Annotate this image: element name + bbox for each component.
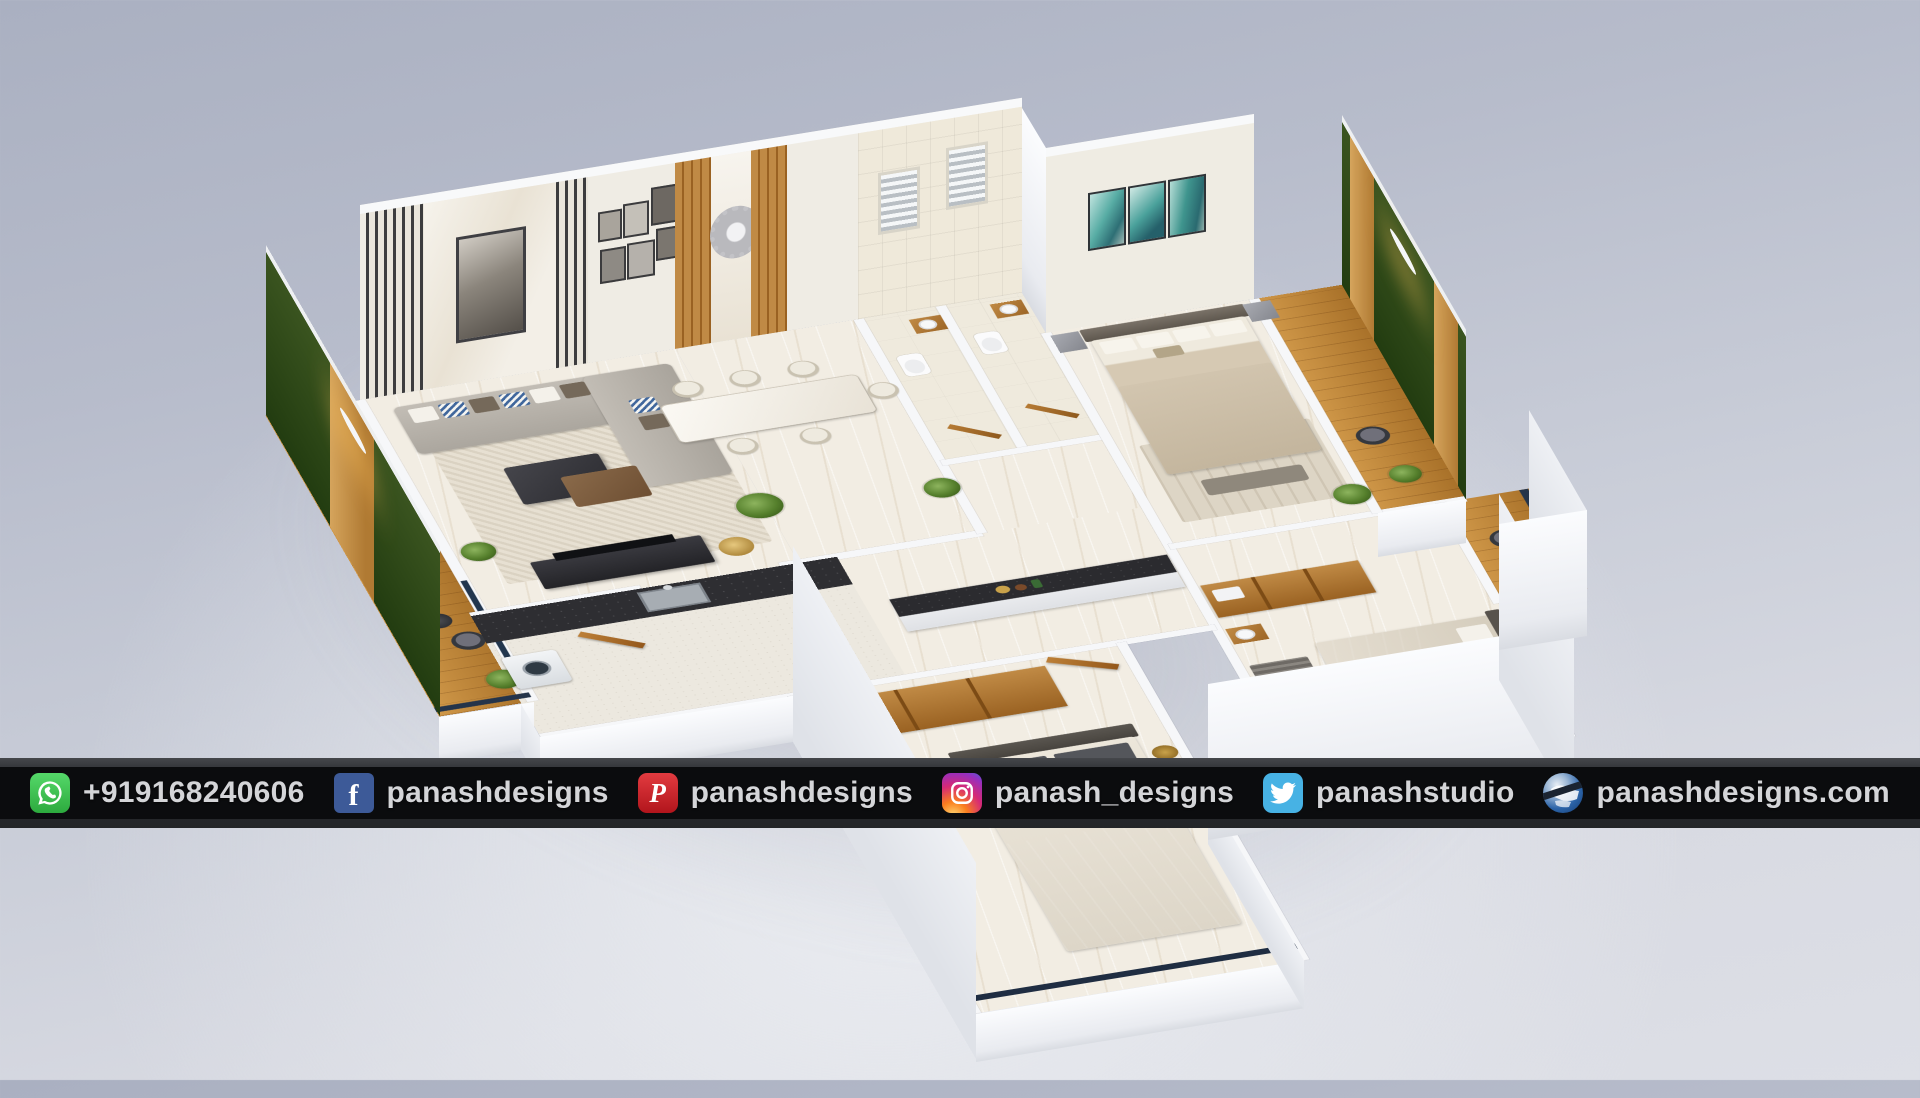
- facebook-handle: panashdesigns: [387, 776, 609, 810]
- gallery-frame-1: [598, 209, 622, 243]
- website-contact[interactable]: panashdesigns.com: [1543, 773, 1890, 813]
- foyer-wood-panel-left: [675, 157, 711, 349]
- twitter-icon: [1263, 773, 1303, 813]
- gallery-frame-4: [600, 246, 626, 284]
- whatsapp-number: +919168240606: [83, 776, 305, 810]
- gallery-frame-5: [627, 239, 655, 280]
- master-back-wall: [1046, 114, 1254, 333]
- instagram-icon: [942, 773, 982, 813]
- twitter-handle: panashstudio: [1316, 776, 1515, 810]
- facebook-icon: f: [334, 773, 374, 813]
- louver-window-1: [878, 166, 920, 235]
- whatsapp-contact[interactable]: +919168240606: [30, 773, 305, 813]
- gallery-frame-3: [651, 184, 677, 226]
- facebook-contact[interactable]: f panashdesigns: [334, 773, 609, 813]
- pinterest-contact[interactable]: P panashdesigns: [638, 773, 913, 813]
- pinterest-icon: P: [638, 773, 678, 813]
- teal-art-panel-3: [1168, 174, 1206, 238]
- pinterest-handle: panashdesigns: [691, 776, 913, 810]
- wall-top-cap: [1046, 114, 1254, 157]
- whatsapp-icon: [30, 773, 70, 813]
- slat-panel-right: [556, 177, 588, 368]
- foyer-wood-panel-right: [751, 145, 787, 337]
- slat-panel-left: [366, 204, 424, 399]
- teal-art-panel-2: [1128, 180, 1166, 244]
- wall-connector-bath-master: [1022, 108, 1046, 333]
- louver-window-2: [946, 141, 988, 210]
- instagram-handle: panash_designs: [995, 776, 1234, 810]
- abstract-art-canvas: [456, 226, 526, 343]
- floorplan-render-page: { "banner": { "items": [ { "icon": "what…: [0, 0, 1920, 1080]
- website-url: panashdesigns.com: [1596, 776, 1890, 810]
- gallery-frame-2: [623, 200, 649, 238]
- balcony2-front-face: [1499, 510, 1587, 650]
- twitter-contact[interactable]: panashstudio: [1263, 773, 1515, 813]
- social-contact-banner-inner: +919168240606 f panashdesigns P panashde…: [0, 767, 1920, 819]
- social-contact-banner: +919168240606 f panashdesigns P panashde…: [0, 758, 1920, 828]
- website-icon: [1543, 773, 1583, 813]
- instagram-contact[interactable]: panash_designs: [942, 773, 1234, 813]
- teal-art-panel-1: [1088, 187, 1126, 251]
- garden-sconce-light: [1390, 224, 1416, 279]
